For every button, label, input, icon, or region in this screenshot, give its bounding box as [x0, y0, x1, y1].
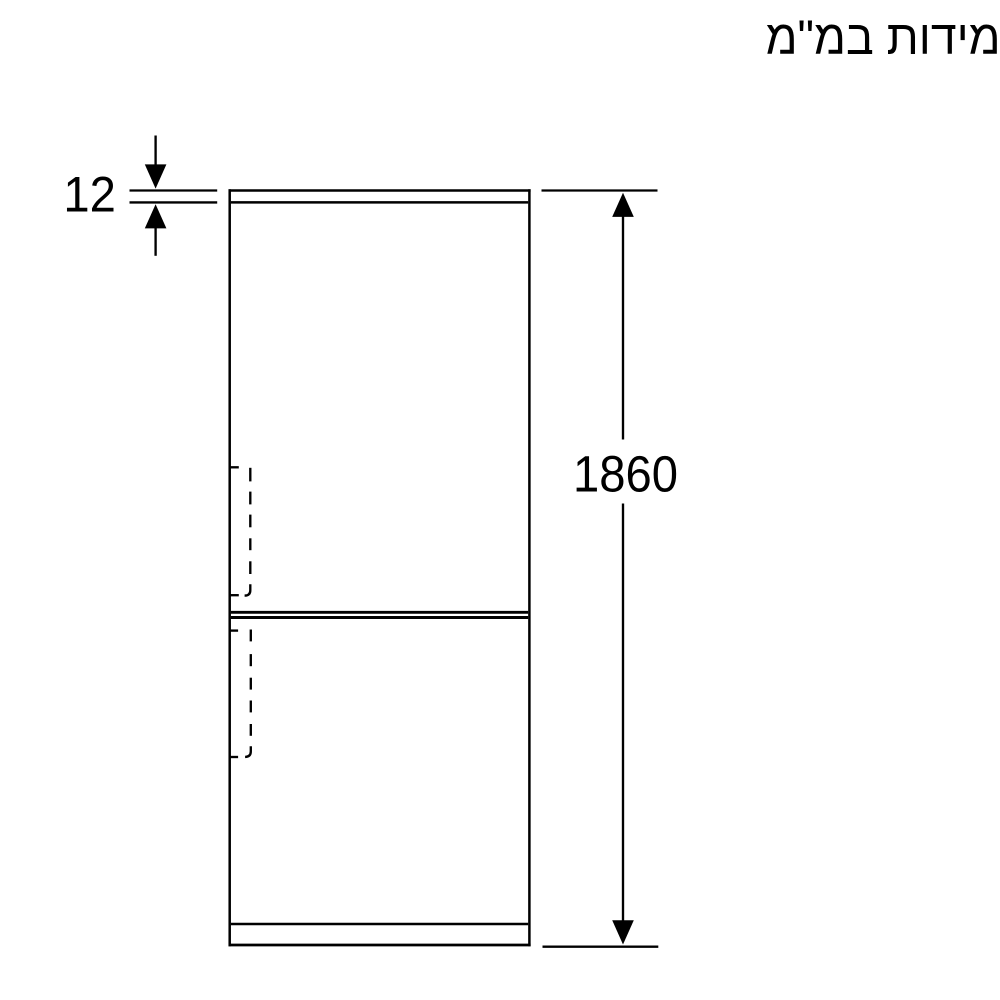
svg-text:1860: 1860 [573, 446, 678, 503]
svg-text:מידות במ"מ: מידות במ"מ [766, 12, 1000, 65]
svg-text:12: 12 [63, 167, 116, 223]
